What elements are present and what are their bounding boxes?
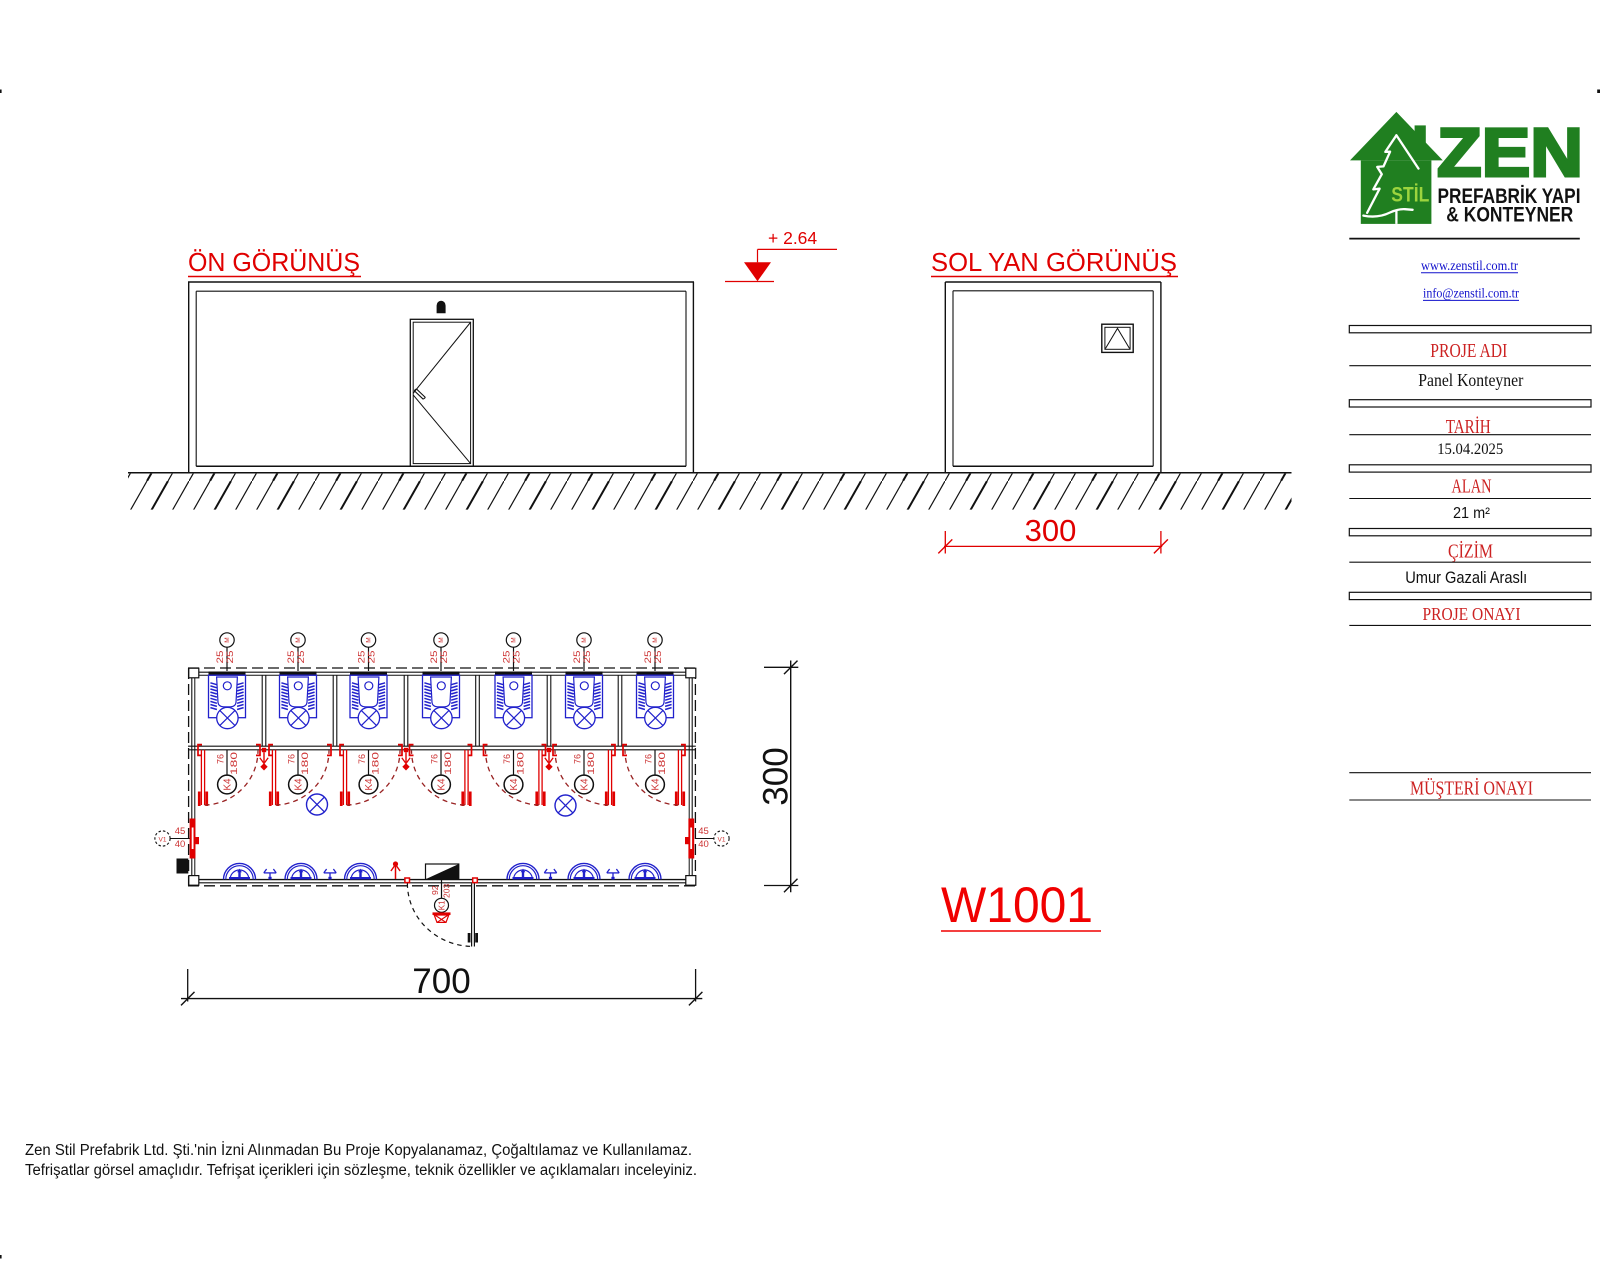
svg-text:Tefrişatlar görsel amaçlıdır.: Tefrişatlar görsel amaçlıdır. Tefrişat i…	[25, 1162, 697, 1179]
svg-text:76: 76	[215, 754, 225, 764]
svg-text:M: M	[511, 637, 518, 642]
svg-text:25: 25	[512, 651, 522, 664]
svg-text:PROJE ONAYI: PROJE ONAYI	[1423, 604, 1521, 624]
svg-text:76: 76	[357, 754, 367, 764]
svg-text:25: 25	[501, 651, 511, 664]
svg-text:25: 25	[582, 651, 592, 664]
svg-text:MÜŞTERİ ONAYI: MÜŞTERİ ONAYI	[1410, 779, 1533, 800]
svg-text:K4: K4	[579, 778, 590, 791]
svg-text:V1: V1	[159, 836, 167, 843]
svg-text:180: 180	[515, 752, 525, 775]
svg-text:25: 25	[296, 651, 306, 664]
svg-text:300: 300	[1025, 513, 1077, 548]
svg-text:76: 76	[643, 754, 653, 764]
svg-text:180: 180	[657, 752, 667, 775]
svg-text:76: 76	[572, 754, 582, 764]
svg-text:ÖN GÖRÜNÜŞ: ÖN GÖRÜNÜŞ	[188, 247, 360, 277]
svg-text:K4: K4	[222, 778, 233, 791]
svg-text:M: M	[581, 637, 588, 642]
svg-text:V1: V1	[718, 836, 726, 843]
svg-text:Zen Stil Prefabrik Ltd. Şti.'n: Zen Stil Prefabrik Ltd. Şti.'nin İzni Al…	[25, 1141, 692, 1159]
svg-text:21 m²: 21 m²	[1453, 505, 1490, 522]
svg-text:25: 25	[286, 651, 296, 664]
svg-text:Umur Gazali Araslı: Umur Gazali Araslı	[1405, 569, 1527, 587]
svg-text:300: 300	[757, 747, 796, 805]
svg-text:76: 76	[429, 754, 439, 764]
svg-text:45: 45	[698, 826, 709, 837]
svg-text:92: 92	[430, 885, 440, 895]
svg-text:SOL YAN GÖRÜNÜŞ: SOL YAN GÖRÜNÜŞ	[931, 247, 1177, 277]
svg-text:K4: K4	[293, 778, 304, 791]
svg-text:25: 25	[356, 651, 366, 664]
svg-text:K4: K4	[509, 778, 520, 791]
svg-text:25: 25	[367, 651, 377, 664]
svg-text:STİL: STİL	[1391, 184, 1429, 207]
svg-text:76: 76	[502, 754, 512, 764]
svg-text:ALAN: ALAN	[1452, 476, 1492, 498]
svg-text:180: 180	[229, 752, 239, 775]
svg-text:40: 40	[175, 839, 186, 850]
svg-text:180: 180	[586, 752, 596, 775]
svg-text:+ 2.64: + 2.64	[768, 228, 817, 248]
svg-text:25: 25	[643, 651, 653, 664]
svg-text:& KONTEYNER: & KONTEYNER	[1446, 204, 1573, 227]
svg-text:M: M	[366, 637, 373, 642]
svg-text:M: M	[438, 637, 445, 642]
svg-text:ÇİZİM: ÇİZİM	[1448, 540, 1493, 563]
svg-text:25: 25	[653, 651, 663, 664]
svg-text:ZEN: ZEN	[1437, 114, 1583, 191]
svg-text:25: 25	[225, 651, 235, 664]
svg-text:K4: K4	[436, 778, 447, 791]
svg-text:25: 25	[439, 651, 449, 664]
svg-text:K1: K1	[437, 900, 446, 910]
svg-text:PROJE ADI: PROJE ADI	[1430, 340, 1507, 362]
svg-text:180: 180	[370, 752, 380, 775]
svg-text:W1001: W1001	[941, 877, 1093, 933]
svg-text:25: 25	[572, 651, 582, 664]
svg-text:40: 40	[698, 839, 709, 850]
svg-text:25: 25	[215, 651, 225, 664]
svg-text:25: 25	[429, 651, 439, 664]
svg-text:M: M	[652, 637, 659, 642]
svg-text:K4: K4	[364, 778, 375, 791]
svg-text:76: 76	[286, 754, 296, 764]
svg-text:K4: K4	[650, 778, 661, 791]
svg-text:www.zenstil.com.tr: www.zenstil.com.tr	[1421, 259, 1518, 274]
svg-text:203: 203	[441, 884, 451, 898]
svg-text:180: 180	[300, 752, 310, 775]
svg-text:M: M	[224, 637, 231, 642]
svg-text:Panel Konteyner: Panel Konteyner	[1418, 370, 1523, 390]
svg-text:M: M	[295, 637, 302, 642]
svg-text:700: 700	[412, 962, 470, 1001]
svg-text:15.04.2025: 15.04.2025	[1437, 441, 1503, 458]
svg-text:180: 180	[443, 752, 453, 775]
svg-text:info@zenstil.com.tr: info@zenstil.com.tr	[1423, 287, 1519, 302]
svg-text:45: 45	[175, 826, 186, 837]
